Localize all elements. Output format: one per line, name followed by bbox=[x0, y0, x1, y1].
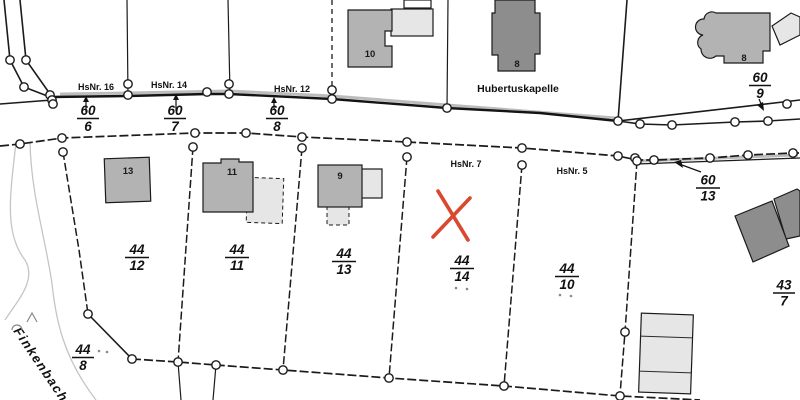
hsnr-5-label: HsNr. 5 bbox=[556, 166, 587, 176]
svg-text:13: 13 bbox=[700, 189, 716, 204]
parcel-label-60-6: 60 6 bbox=[77, 103, 99, 134]
building-se-light bbox=[639, 313, 694, 394]
building-8-ne-annex bbox=[772, 13, 800, 45]
svg-text:44: 44 bbox=[453, 253, 470, 268]
parcel-label-44-12: 44 12 bbox=[125, 242, 149, 273]
svg-text:44: 44 bbox=[558, 261, 575, 276]
parcel-label-44-10: 44 10 bbox=[555, 261, 579, 292]
building-10-annex bbox=[391, 9, 433, 36]
svg-text:44: 44 bbox=[335, 246, 352, 261]
building-10-number: 10 bbox=[365, 49, 376, 60]
parcel-label-60-13: 60 13 bbox=[696, 173, 720, 204]
svg-text:7: 7 bbox=[780, 294, 789, 309]
hsnr-16-label: HsNr. 16 bbox=[78, 82, 114, 92]
building-9-annex-east bbox=[361, 169, 382, 198]
parcel-label-60-8: 60 8 bbox=[266, 103, 288, 134]
building-8-ne bbox=[695, 12, 770, 63]
building-8-ne-number: 8 bbox=[741, 53, 746, 64]
buildings bbox=[104, 0, 800, 394]
parcel-denominator: 6 bbox=[84, 119, 92, 134]
parcel-label-43-7: 43 7 bbox=[773, 278, 795, 309]
red-x-marker bbox=[433, 191, 470, 240]
svg-text:44: 44 bbox=[128, 242, 145, 257]
svg-text:12: 12 bbox=[129, 258, 145, 273]
map-svg: 60 6 60 7 60 8 60 9 60 13 44 12 44 11 44… bbox=[0, 0, 800, 400]
svg-text:44: 44 bbox=[228, 242, 245, 257]
svg-text:8: 8 bbox=[273, 119, 281, 134]
svg-text:60: 60 bbox=[752, 70, 768, 85]
svg-text:14: 14 bbox=[454, 269, 470, 284]
building-11-number: 11 bbox=[227, 167, 238, 178]
svg-text:60: 60 bbox=[700, 173, 716, 188]
parcel-label-44-14: 44 14 bbox=[450, 253, 474, 284]
building-13-number: 13 bbox=[123, 166, 134, 177]
cadastral-map-canvas[interactable]: 60 6 60 7 60 8 60 9 60 13 44 12 44 11 44… bbox=[0, 0, 800, 400]
svg-text:43: 43 bbox=[775, 278, 792, 293]
svg-text:60: 60 bbox=[269, 103, 285, 118]
parcel-number: 60 bbox=[80, 103, 96, 118]
svg-text:44: 44 bbox=[74, 342, 91, 357]
svg-text:7: 7 bbox=[171, 119, 180, 134]
hsnr-12-label: HsNr. 12 bbox=[274, 84, 310, 94]
building-9-number: 9 bbox=[337, 171, 342, 182]
svg-text:13: 13 bbox=[336, 262, 352, 277]
svg-text:9: 9 bbox=[756, 86, 764, 101]
svg-text:11: 11 bbox=[230, 258, 244, 273]
building-10-annex-white bbox=[404, 0, 431, 8]
building-8-chapel-number: 8 bbox=[514, 59, 519, 70]
reference-dots bbox=[98, 287, 573, 354]
building-13 bbox=[104, 157, 151, 203]
svg-text:10: 10 bbox=[559, 277, 575, 292]
building-9-annex-south bbox=[327, 207, 349, 225]
road-north-edge bbox=[50, 94, 800, 125]
parcel-label-44-11: 44 11 bbox=[225, 242, 249, 273]
svg-text:60: 60 bbox=[167, 103, 183, 118]
hsnr-7-label: HsNr. 7 bbox=[450, 159, 481, 169]
parcel-label-44-13: 44 13 bbox=[332, 246, 356, 277]
parcel-label-60-9: 60 9 bbox=[749, 70, 771, 101]
parcel-label-60-7: 60 7 bbox=[164, 103, 186, 134]
svg-text:8: 8 bbox=[79, 358, 87, 373]
poi-hubertuskapelle-label: Hubertuskapelle bbox=[477, 83, 559, 95]
hsnr-14-label: HsNr. 14 bbox=[151, 80, 187, 90]
